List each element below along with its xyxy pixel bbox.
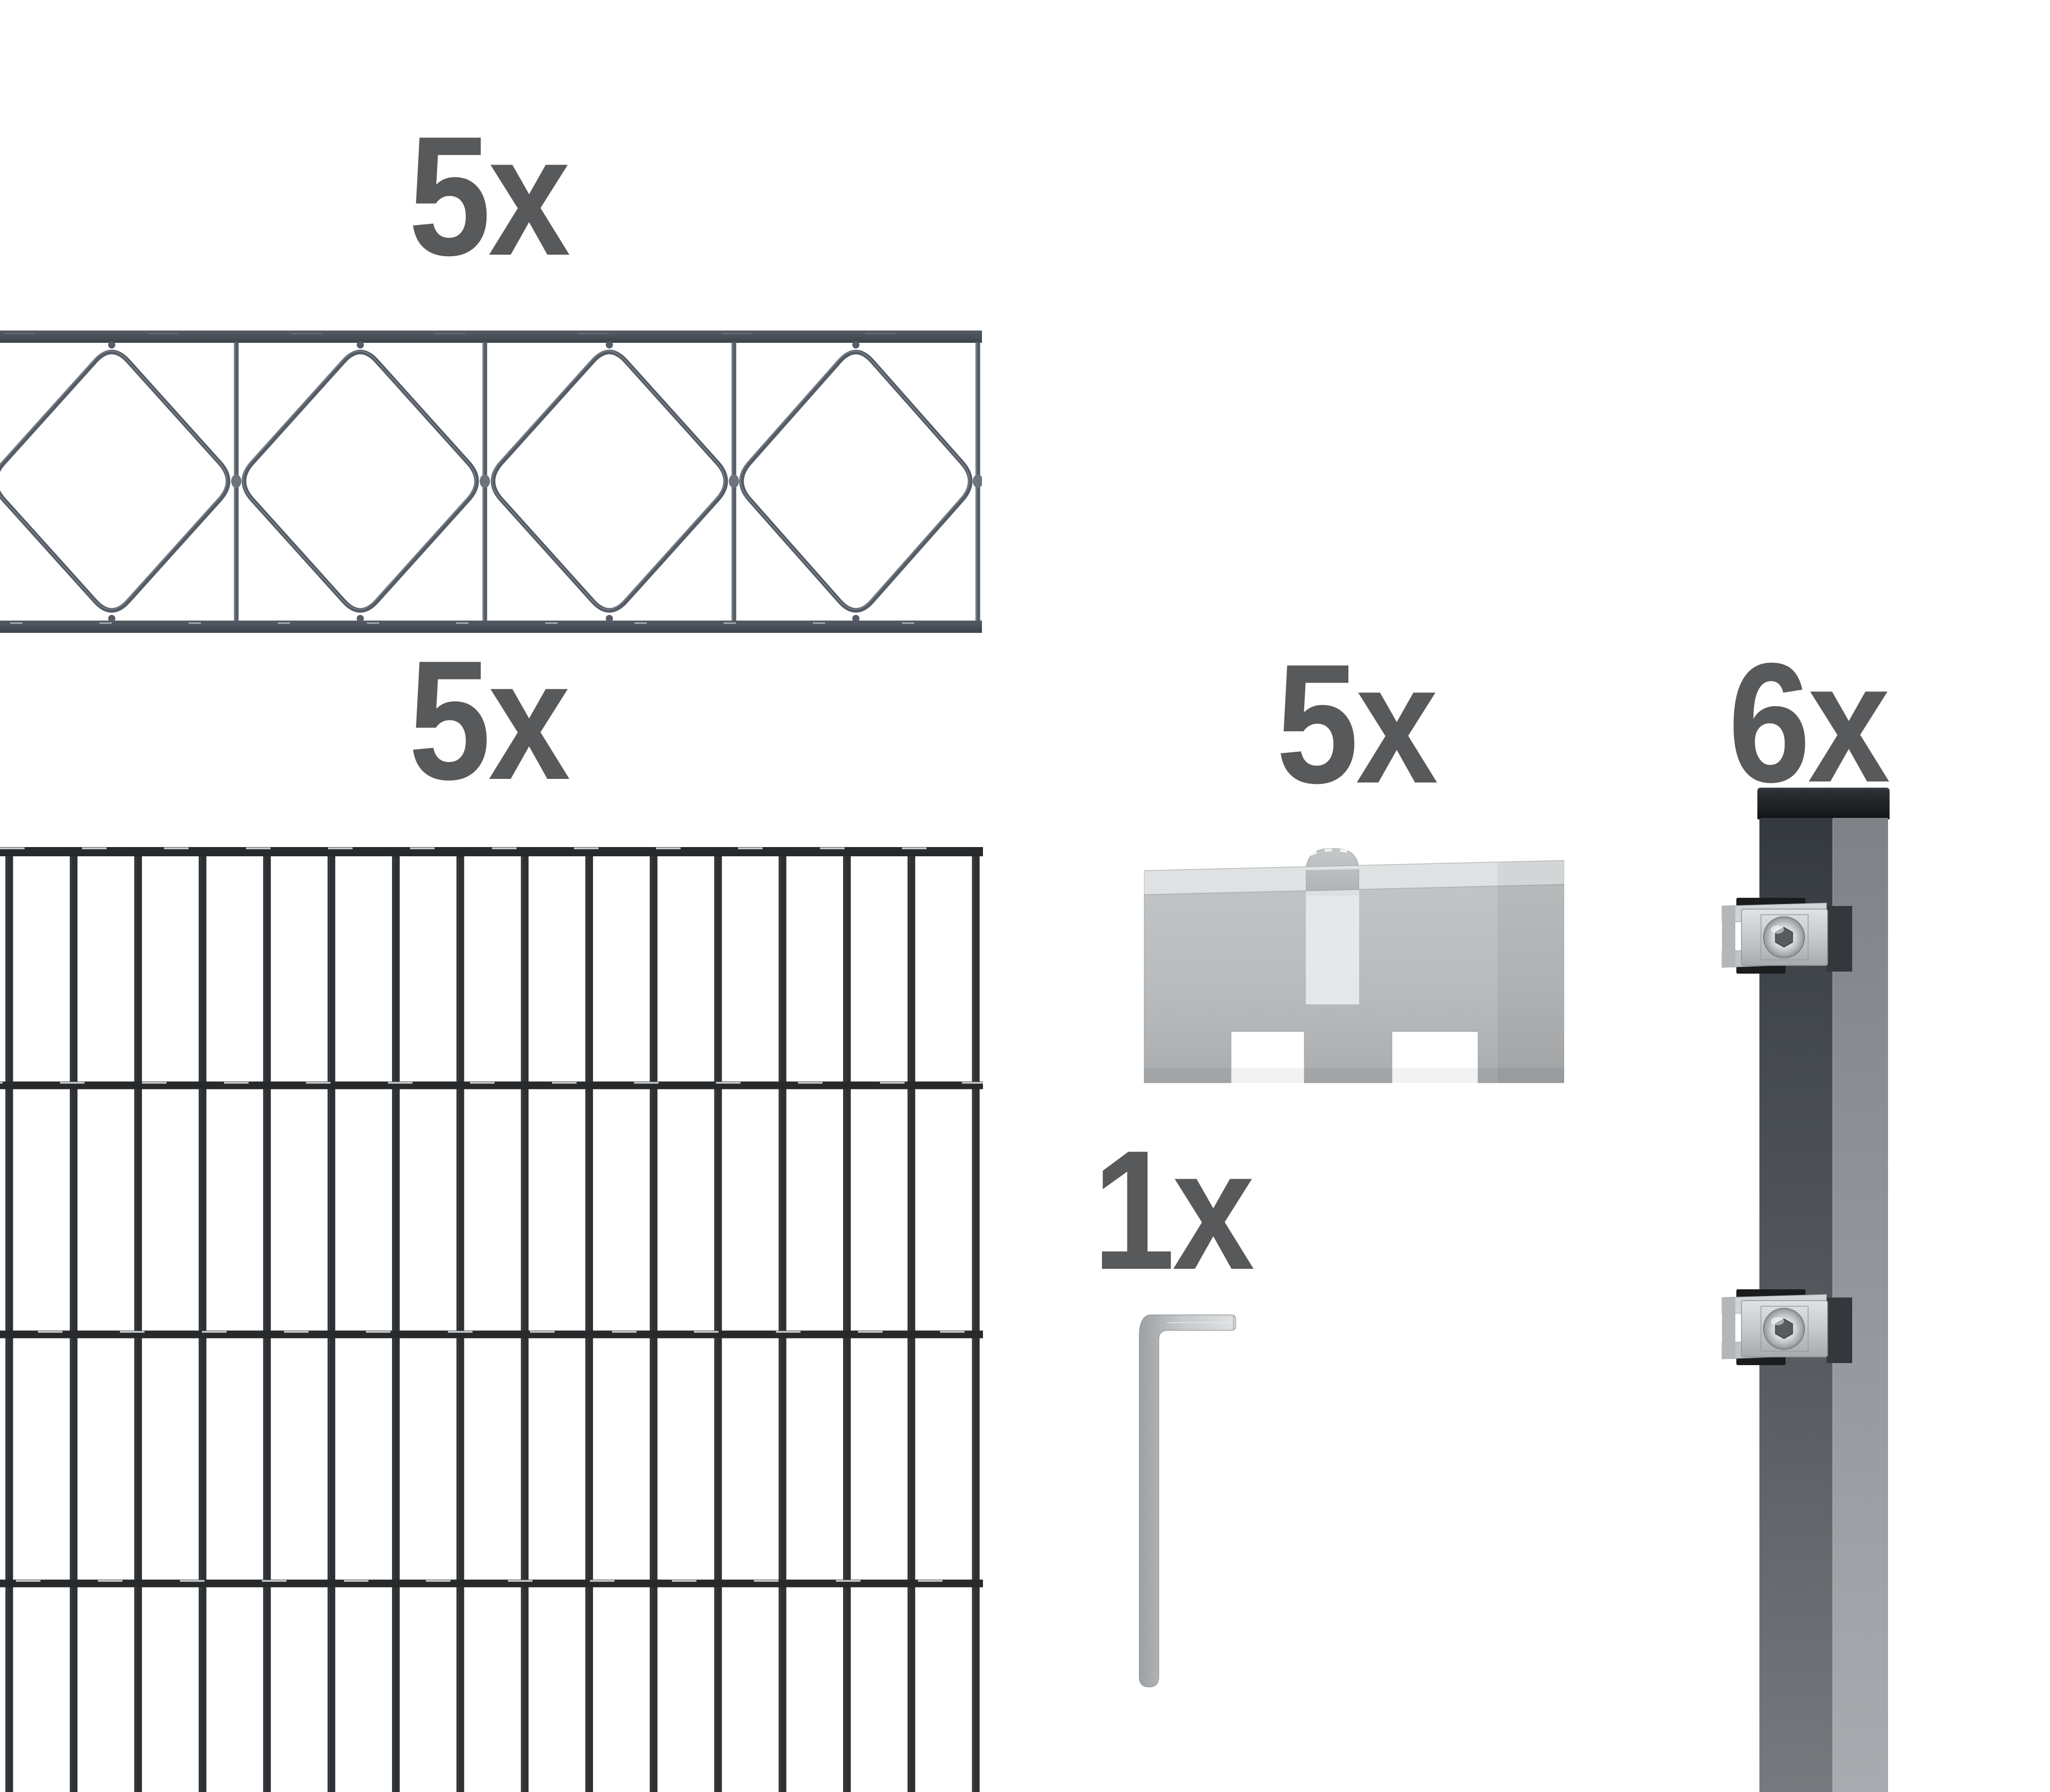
cover-clamp-plate: [1144, 848, 1564, 1083]
qty-label-clamp: 5x: [1276, 639, 1436, 809]
qty-label-hex-key: 1x: [1093, 1125, 1252, 1295]
double-rod-mesh-panel: [0, 846, 983, 1792]
post-clamp-upper: [1721, 898, 1855, 976]
hex-key: [1130, 1307, 1243, 1696]
post-cap: [1757, 788, 1890, 819]
post-clamp-lower: [1721, 1289, 1855, 1367]
decorative-diamond-top-panel: [0, 331, 982, 633]
qty-label-decor-panel: 5x: [408, 111, 568, 281]
product-photo-canvas: 5x 5x 5x 6x 1x: [0, 0, 2050, 1792]
qty-label-post: 6x: [1728, 638, 1888, 808]
qty-label-mesh-panel: 5x: [408, 635, 568, 806]
